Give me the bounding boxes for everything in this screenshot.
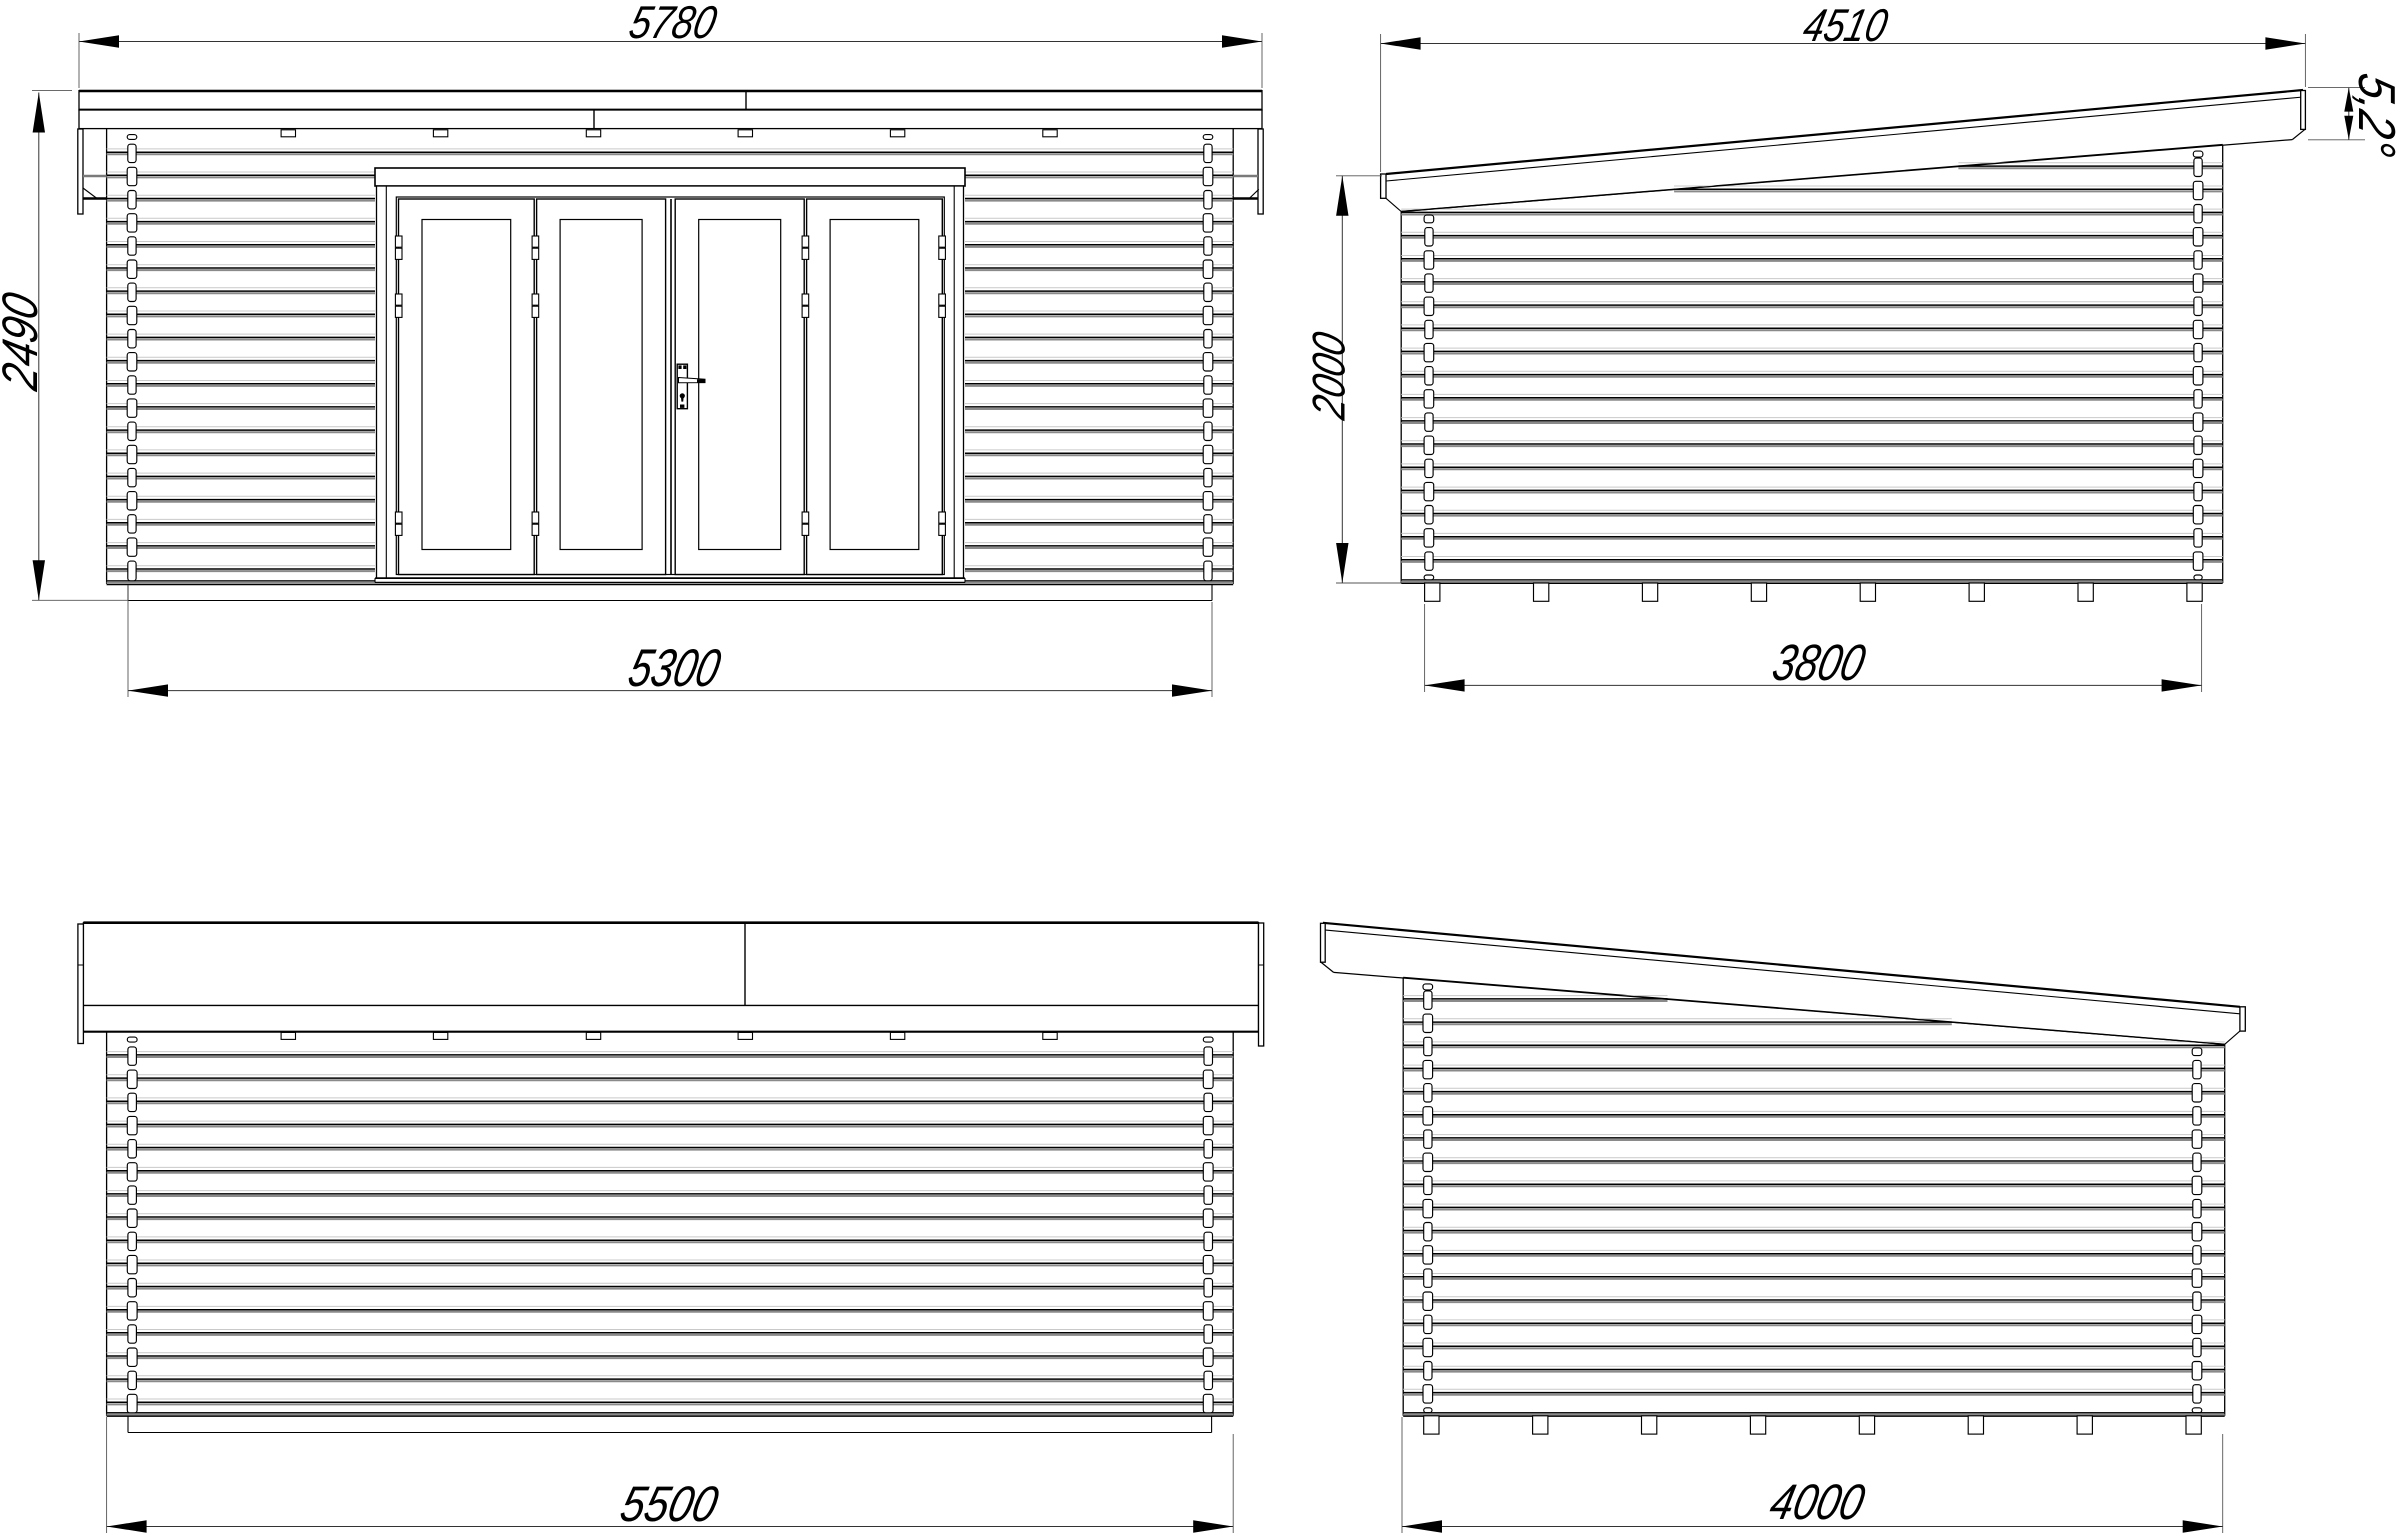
svg-text:4000: 4000 xyxy=(1765,1474,1870,1530)
svg-text:2490: 2490 xyxy=(0,288,48,396)
svg-text:5,2°: 5,2° xyxy=(2347,68,2400,161)
svg-text:5500: 5500 xyxy=(615,1476,723,1532)
svg-text:3800: 3800 xyxy=(1767,634,1870,691)
svg-text:5300: 5300 xyxy=(623,639,726,698)
svg-text:5780: 5780 xyxy=(625,0,722,48)
svg-text:4510: 4510 xyxy=(1799,0,1893,51)
svg-text:2000: 2000 xyxy=(1303,327,1354,424)
